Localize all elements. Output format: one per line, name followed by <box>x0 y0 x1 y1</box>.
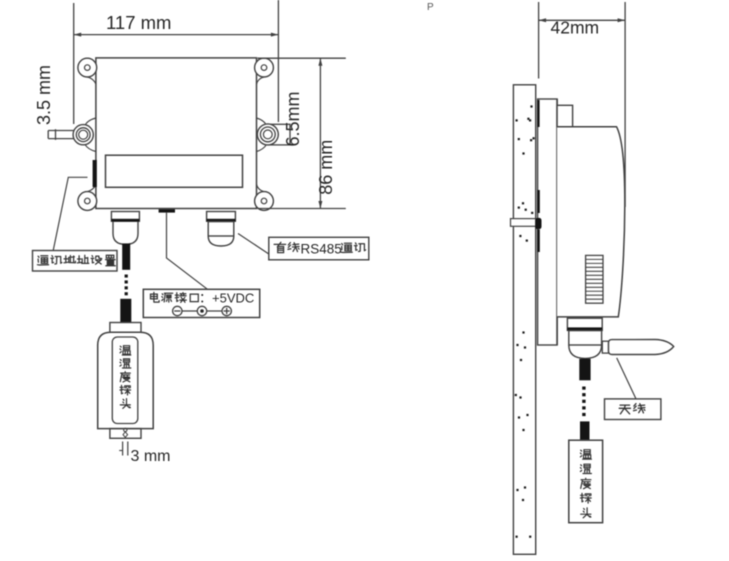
svg-text:3.5 mm: 3.5 mm <box>34 65 54 125</box>
svg-text:117 mm: 117 mm <box>106 12 171 33</box>
svg-text:6.5mm: 6.5mm <box>283 91 303 146</box>
svg-text:3 mm: 3 mm <box>131 448 171 465</box>
svg-text:86 mm: 86 mm <box>316 140 336 195</box>
svg-text:：+5VDC: ：+5VDC <box>199 290 254 305</box>
svg-text:P: P <box>427 2 434 13</box>
svg-text:42mm: 42mm <box>551 18 600 38</box>
svg-text:RS485: RS485 <box>301 242 342 257</box>
